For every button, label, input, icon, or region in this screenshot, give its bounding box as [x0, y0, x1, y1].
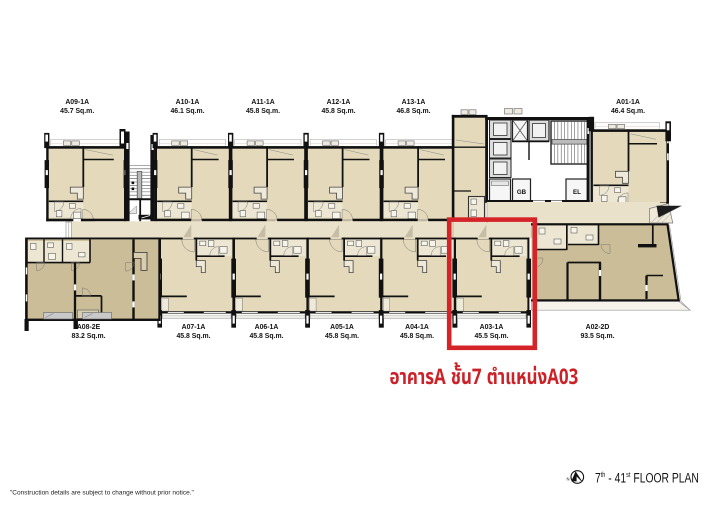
svg-text:A13-1A: A13-1A: [402, 99, 426, 106]
svg-text:A03-1A: A03-1A: [480, 324, 504, 331]
svg-text:45.5 Sq.m.: 45.5 Sq.m.: [474, 333, 508, 340]
svg-text:45.8 Sq.m.: 45.8 Sq.m.: [246, 108, 280, 115]
svg-text:45.8 Sq.m.: 45.8 Sq.m.: [176, 333, 210, 340]
svg-text:A07-1A: A07-1A: [182, 324, 206, 331]
svg-text:A05-1A: A05-1A: [330, 324, 354, 331]
svg-text:GB: GB: [517, 189, 527, 196]
svg-text:45.8 Sq.m.: 45.8 Sq.m.: [321, 108, 355, 115]
svg-text:93.5 Sq.m.: 93.5 Sq.m.: [580, 333, 614, 340]
svg-text:N: N: [567, 477, 570, 482]
svg-text:83.2 Sq.m.: 83.2 Sq.m.: [71, 333, 105, 340]
svg-text:A04-1A: A04-1A: [405, 324, 429, 331]
svg-text:A08-2E: A08-2E: [77, 324, 101, 331]
svg-text:A01-1A: A01-1A: [616, 99, 640, 106]
svg-text:A11-1A: A11-1A: [251, 99, 274, 106]
svg-text:A09-1A: A09-1A: [65, 99, 89, 106]
svg-text:46.1 Sq.m.: 46.1 Sq.m.: [170, 108, 204, 115]
svg-text:A12-1A: A12-1A: [327, 99, 351, 106]
svg-text:EL: EL: [573, 189, 581, 196]
svg-text:A10-1A: A10-1A: [176, 99, 200, 106]
svg-text:7th - 41st FLOOR PLAN: 7th - 41st FLOOR PLAN: [595, 470, 699, 486]
svg-text:45.8 Sq.m.: 45.8 Sq.m.: [325, 333, 359, 340]
svg-text:45.8 Sq.m.: 45.8 Sq.m.: [400, 333, 434, 340]
svg-text:A02-2D: A02-2D: [586, 324, 610, 331]
svg-text:46.4 Sq.m.: 46.4 Sq.m.: [611, 108, 645, 115]
svg-text:46.8 Sq.m.: 46.8 Sq.m.: [396, 108, 430, 115]
svg-text:45.8 Sq.m.: 45.8 Sq.m.: [249, 333, 283, 340]
svg-text:45.7 Sq.m.: 45.7 Sq.m.: [60, 108, 94, 115]
svg-text:A06-1A: A06-1A: [255, 324, 279, 331]
svg-text:"Construction details are subj: "Construction details are subject to cha…: [10, 490, 195, 497]
